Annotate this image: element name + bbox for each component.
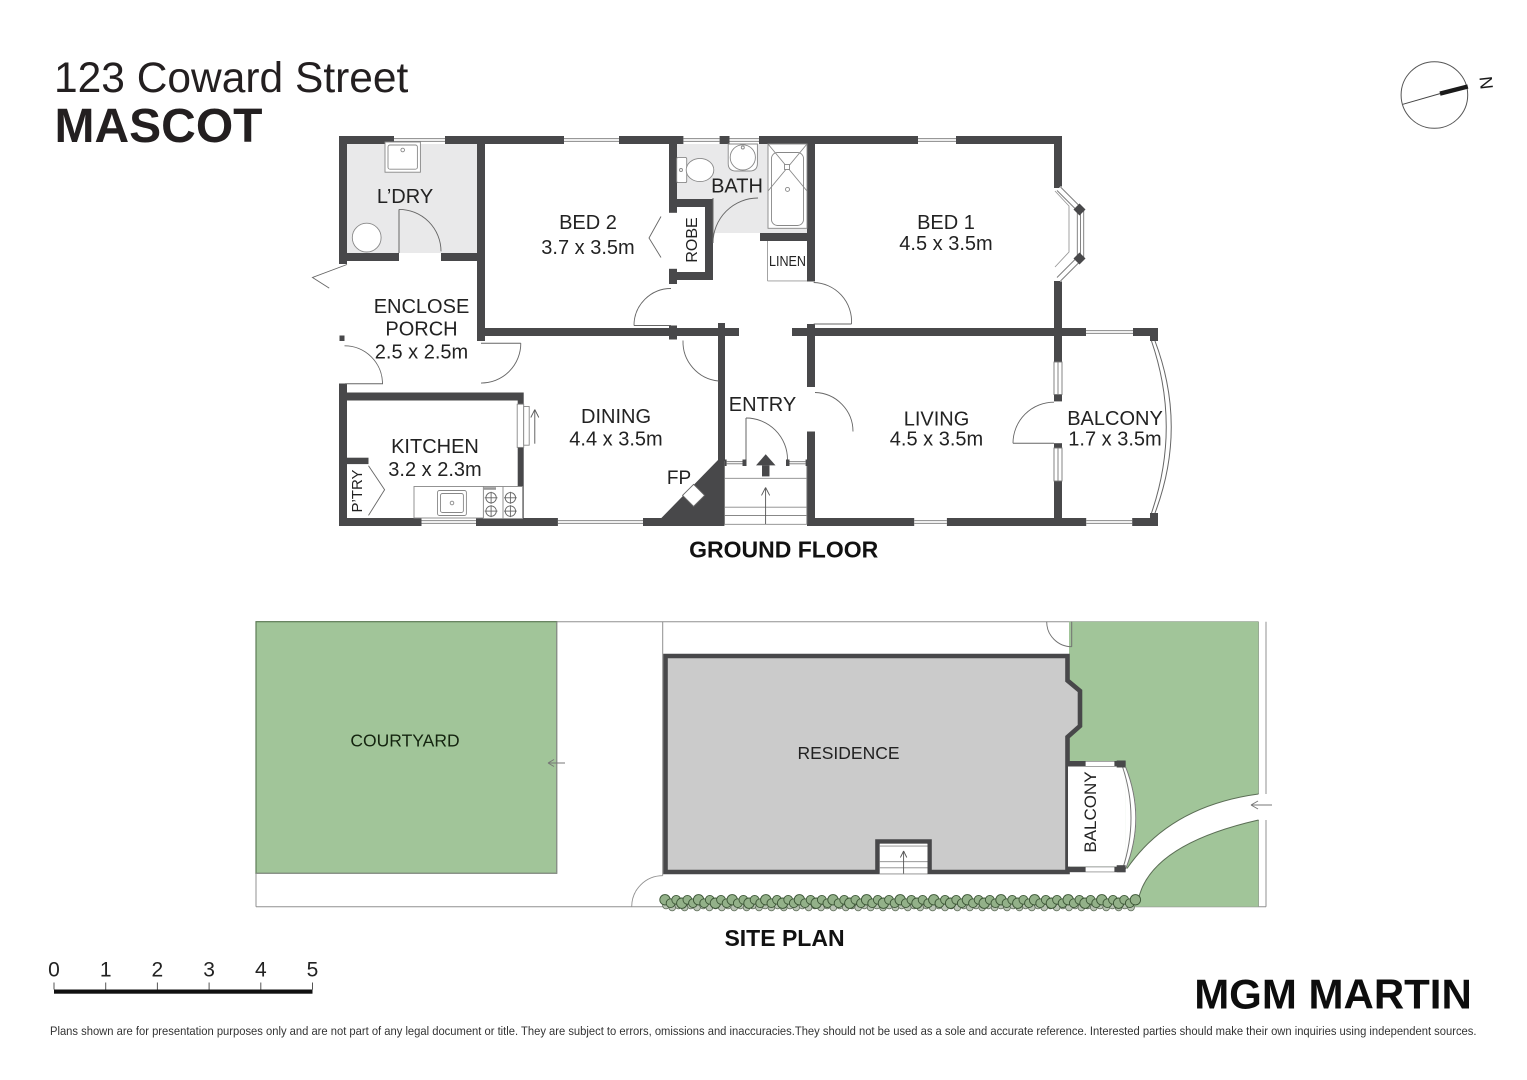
svg-text:PORCH: PORCH [385,319,457,341]
svg-text:N: N [1475,75,1496,90]
svg-text:RESIDENCE: RESIDENCE [797,743,899,763]
svg-text:1.7 x 3.5m: 1.7 x 3.5m [1068,428,1161,450]
svg-text:ENCLOSE: ENCLOSE [374,296,470,318]
svg-text:BALCONY: BALCONY [1067,408,1163,430]
svg-text:GROUND FLOOR: GROUND FLOOR [689,537,878,563]
svg-text:P’TRY: P’TRY [349,469,366,512]
svg-text:1: 1 [100,958,112,981]
svg-text:BATH: BATH [711,176,763,198]
svg-text:4: 4 [255,958,267,981]
svg-text:123 Coward Street: 123 Coward Street [54,55,409,102]
svg-text:0: 0 [48,958,60,981]
svg-text:3: 3 [203,958,215,981]
svg-text:4.4 x 3.5m: 4.4 x 3.5m [569,428,662,450]
svg-text:3.7 x 3.5m: 3.7 x 3.5m [541,237,634,259]
svg-text:4.5 x 3.5m: 4.5 x 3.5m [890,428,983,450]
svg-text:ENTRY: ENTRY [729,394,796,416]
svg-text:2.5 x 2.5m: 2.5 x 2.5m [375,341,468,363]
svg-text:KITCHEN: KITCHEN [391,436,479,458]
svg-text:2: 2 [152,958,164,981]
svg-text:MASCOT: MASCOT [55,100,263,153]
svg-text:BALCONY: BALCONY [1081,771,1100,852]
svg-text:L’DRY: L’DRY [377,186,433,208]
svg-text:4.5 x 3.5m: 4.5 x 3.5m [899,233,992,255]
svg-text:ROBE: ROBE [684,217,701,262]
svg-text:5: 5 [307,958,319,981]
svg-text:DINING: DINING [581,406,651,428]
svg-text:BED 2: BED 2 [559,212,617,234]
svg-text:LINEN: LINEN [769,254,806,270]
svg-text:SITE PLAN: SITE PLAN [724,925,844,951]
svg-text:FP: FP [667,468,691,489]
svg-text:MGM MARTIN: MGM MARTIN [1194,971,1472,1018]
svg-text:COURTYARD: COURTYARD [350,731,459,751]
svg-text:LIVING: LIVING [904,409,970,431]
svg-text:3.2 x 2.3m: 3.2 x 2.3m [388,459,481,481]
svg-text:BED 1: BED 1 [917,212,975,234]
svg-text:Plans shown are for presentati: Plans shown are for presentation purpose… [50,1024,1477,1038]
